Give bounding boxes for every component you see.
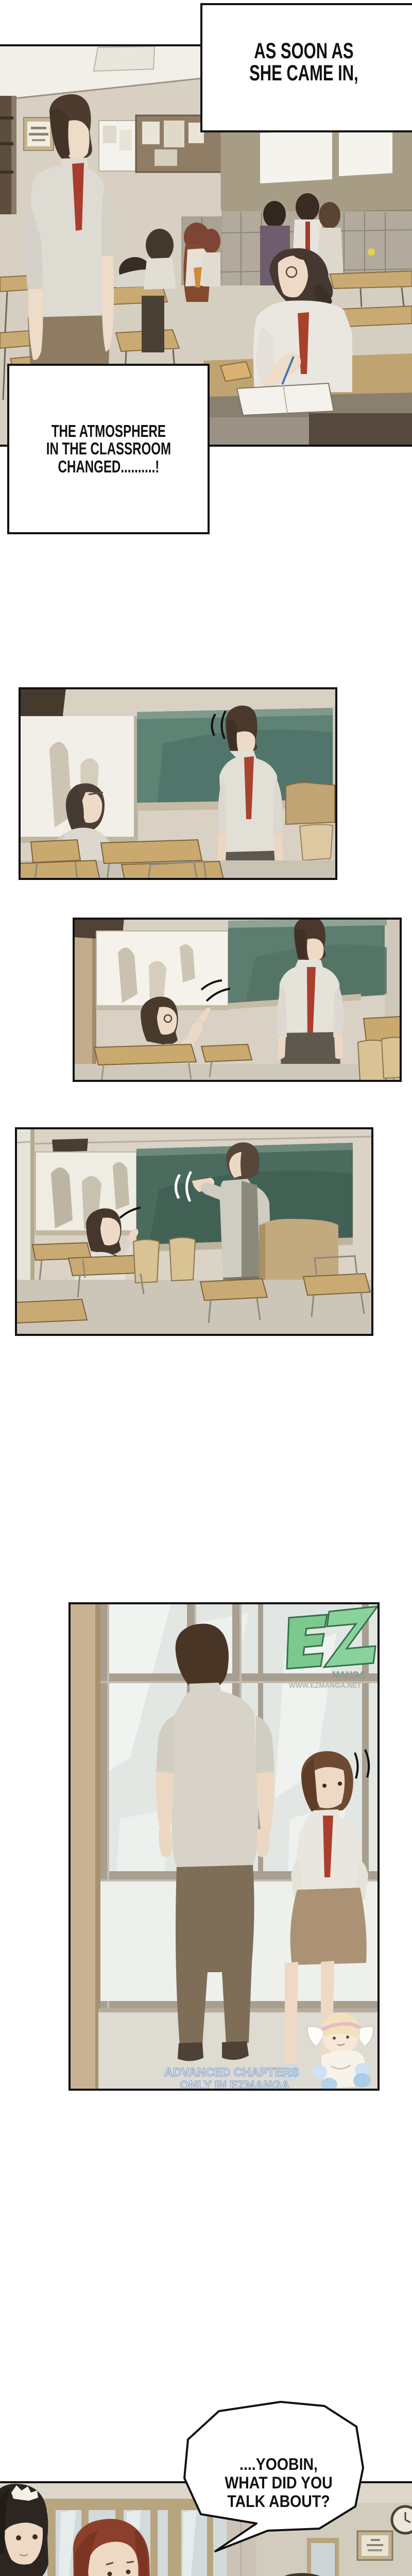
svg-text:ADVANCED CHAPTERS: ADVANCED CHAPTERS xyxy=(164,2065,299,2079)
svg-text:MANGA: MANGA xyxy=(332,1670,365,1680)
svg-text:WWW.EZMANGA.NET: WWW.EZMANGA.NET xyxy=(289,1682,362,1689)
